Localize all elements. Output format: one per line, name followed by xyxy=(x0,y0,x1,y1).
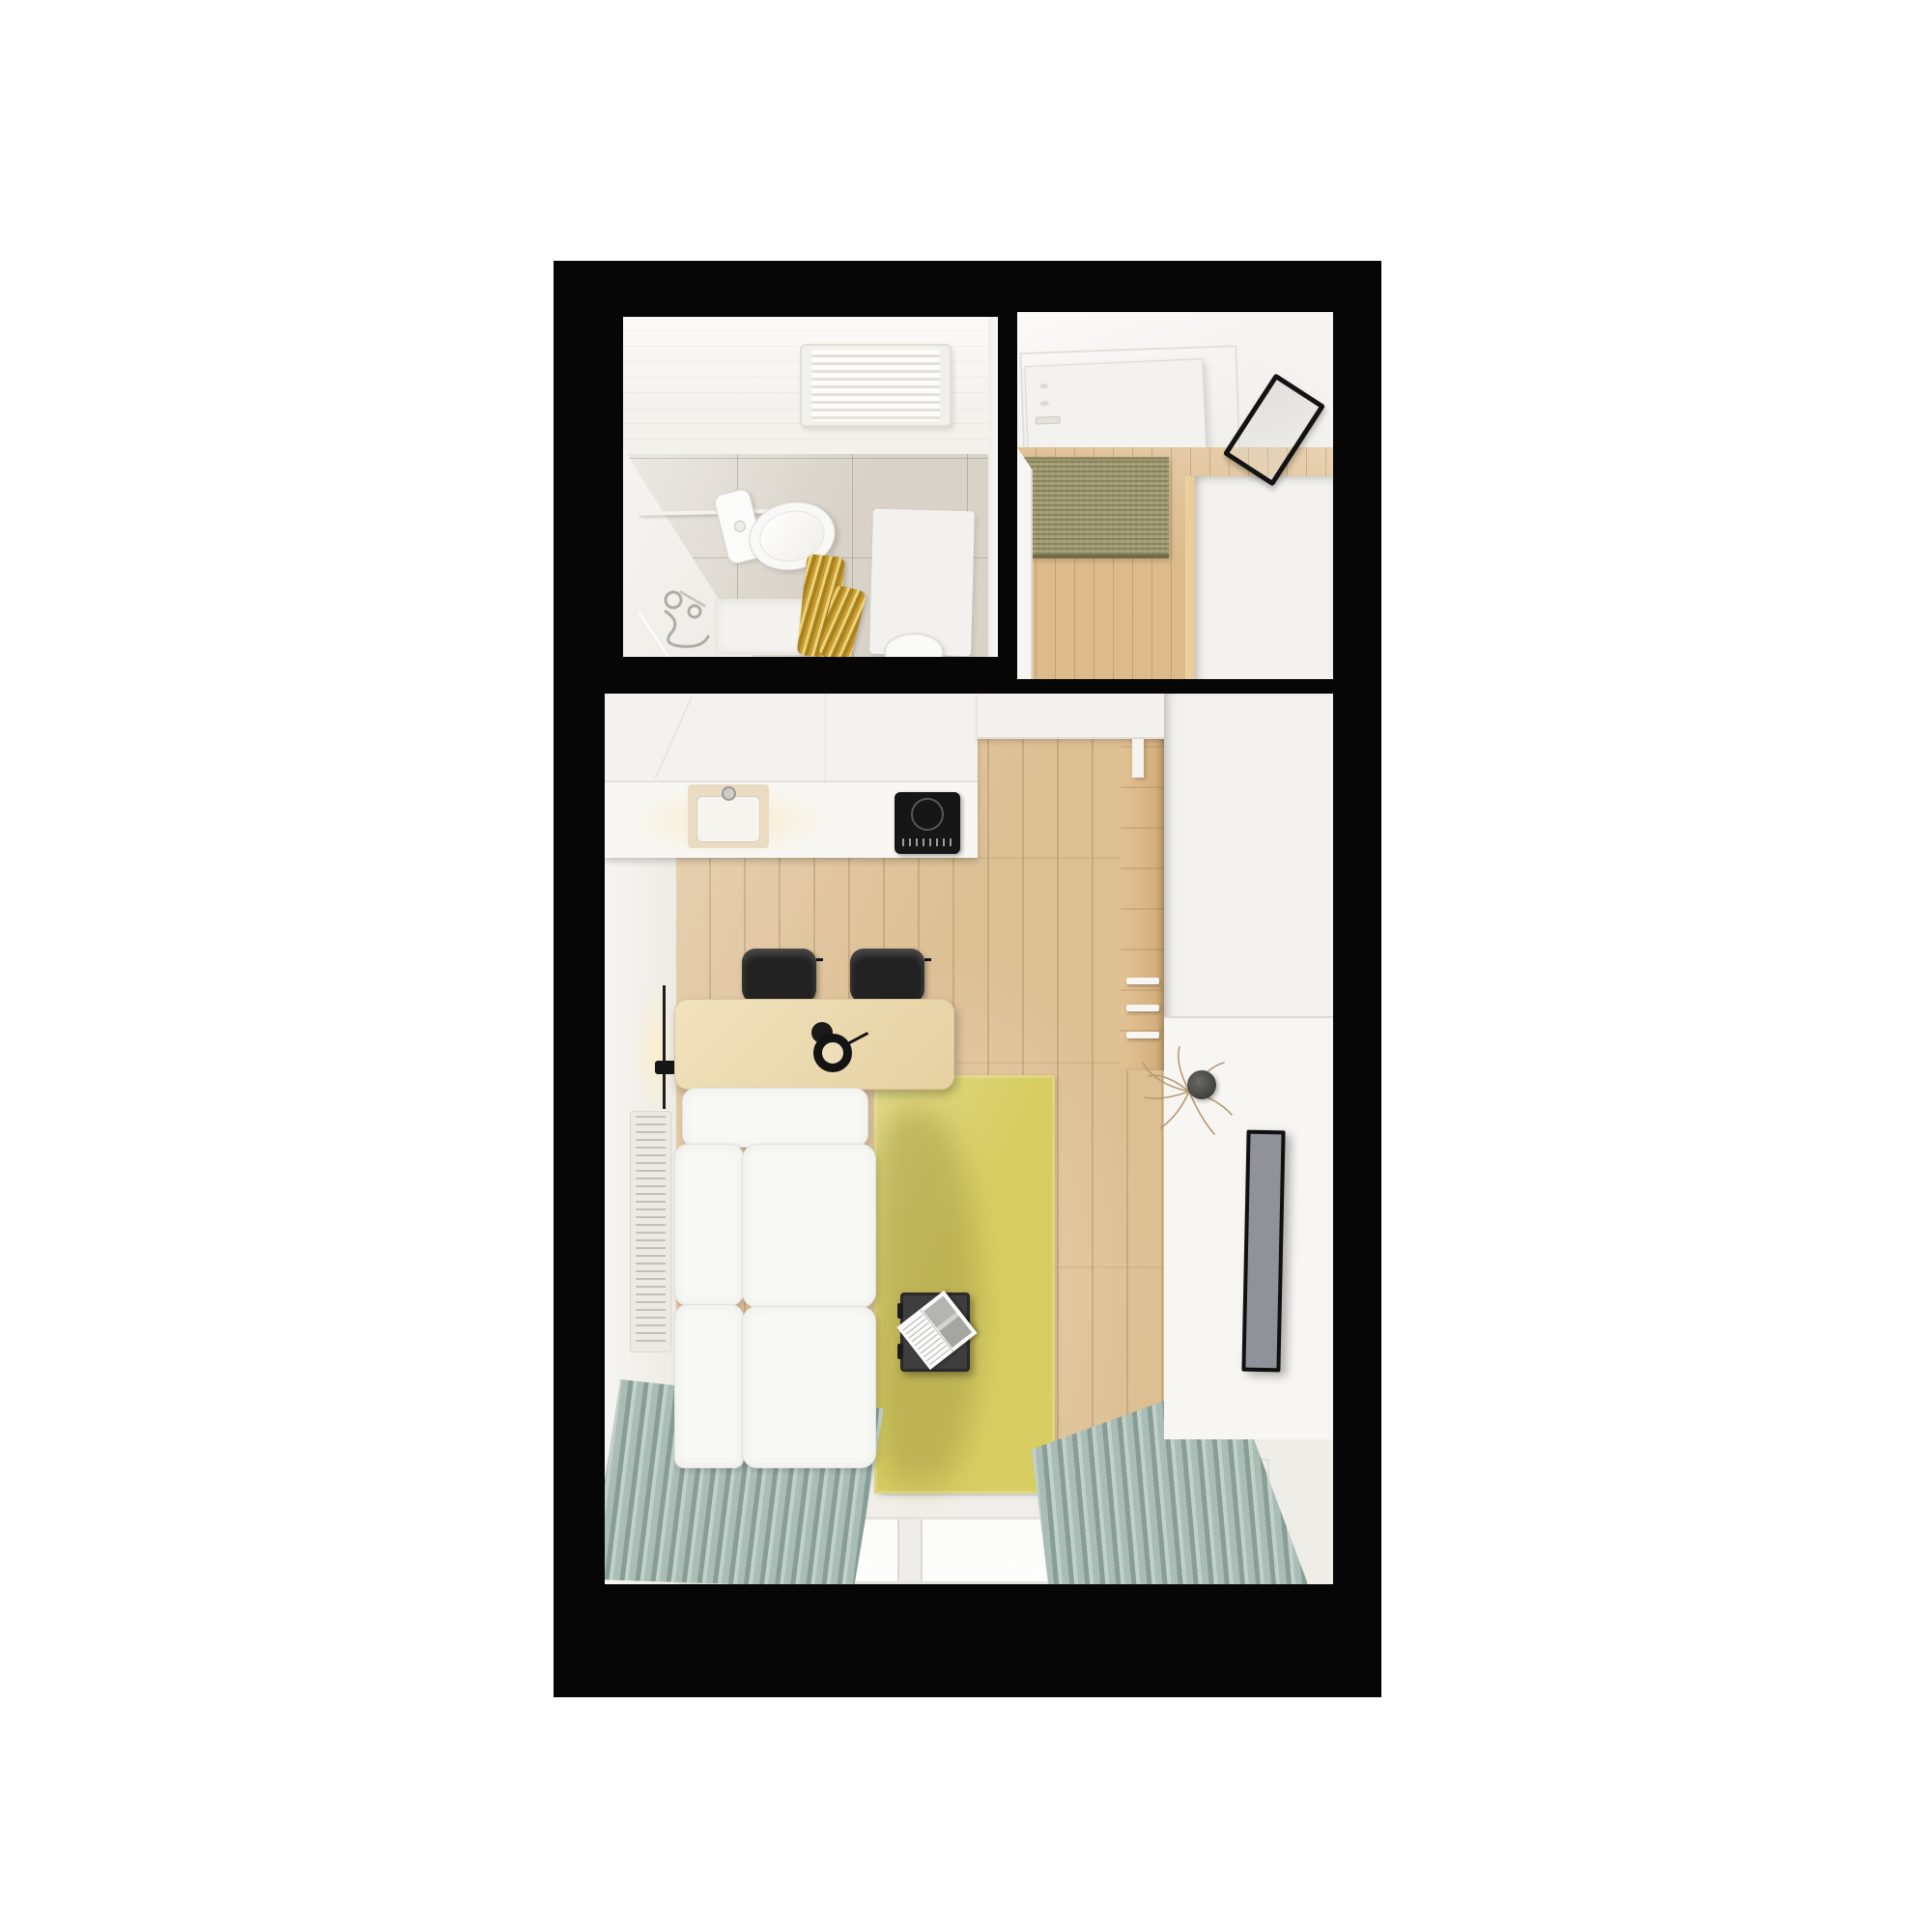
door-handle xyxy=(1036,416,1061,425)
door-peephole xyxy=(1039,384,1048,388)
wall-radiator-grille xyxy=(630,1111,671,1352)
vase xyxy=(1187,1070,1216,1099)
room-living xyxy=(605,694,1333,1584)
hob-controls xyxy=(902,838,952,846)
dining-chair xyxy=(742,949,816,1003)
coffee-table-handle xyxy=(897,1344,903,1359)
room-hallway xyxy=(1017,312,1333,679)
wall-lamp xyxy=(663,985,666,1109)
sofa-back-cushion xyxy=(682,1088,868,1148)
room-bathroom xyxy=(623,317,998,657)
door-lock xyxy=(1040,401,1049,406)
window-mullion xyxy=(897,1520,923,1581)
open-interior-door xyxy=(1017,447,1033,679)
wall-bracket xyxy=(1132,739,1144,778)
sink-basin xyxy=(696,796,760,842)
kitchen-upper-cabinets xyxy=(605,694,978,782)
corner-sofa xyxy=(674,1088,876,1468)
sisal-doormat xyxy=(1022,457,1169,558)
sofa-armrest-cushion xyxy=(674,1144,744,1306)
hallway-wardrobe xyxy=(1195,476,1333,679)
apartment-outline xyxy=(554,261,1381,1697)
coffee-table-handle xyxy=(897,1303,903,1319)
kitchen-sink xyxy=(688,784,769,848)
wall-shelf xyxy=(1126,1005,1159,1011)
sofa-seat-cushion xyxy=(742,1306,876,1468)
hob-ring xyxy=(911,798,944,831)
kitchen-counter xyxy=(605,694,978,858)
wall-lamp-bracket xyxy=(655,1061,676,1074)
faucet xyxy=(722,786,736,801)
wood-accent-wall xyxy=(1121,739,1164,1070)
wardrobe-and-sideboard xyxy=(1164,694,1333,1439)
shower-mixer xyxy=(652,582,720,655)
coffee-table xyxy=(900,1293,970,1372)
floorplan-canvas xyxy=(0,0,1932,1932)
open-magazine xyxy=(896,1291,977,1370)
pendant-lamp xyxy=(813,1034,852,1072)
sofa-seat-cushion xyxy=(742,1144,876,1308)
wall-shelf xyxy=(1126,978,1159,984)
towel-radiator xyxy=(800,344,952,427)
induction-hob xyxy=(895,792,960,854)
sofa-armrest-cushion xyxy=(674,1304,744,1468)
tv-screen xyxy=(1241,1130,1285,1373)
dining-chair xyxy=(850,949,924,1003)
wall-lamp-glow xyxy=(634,979,676,1123)
bathroom-right-wall xyxy=(988,317,998,657)
